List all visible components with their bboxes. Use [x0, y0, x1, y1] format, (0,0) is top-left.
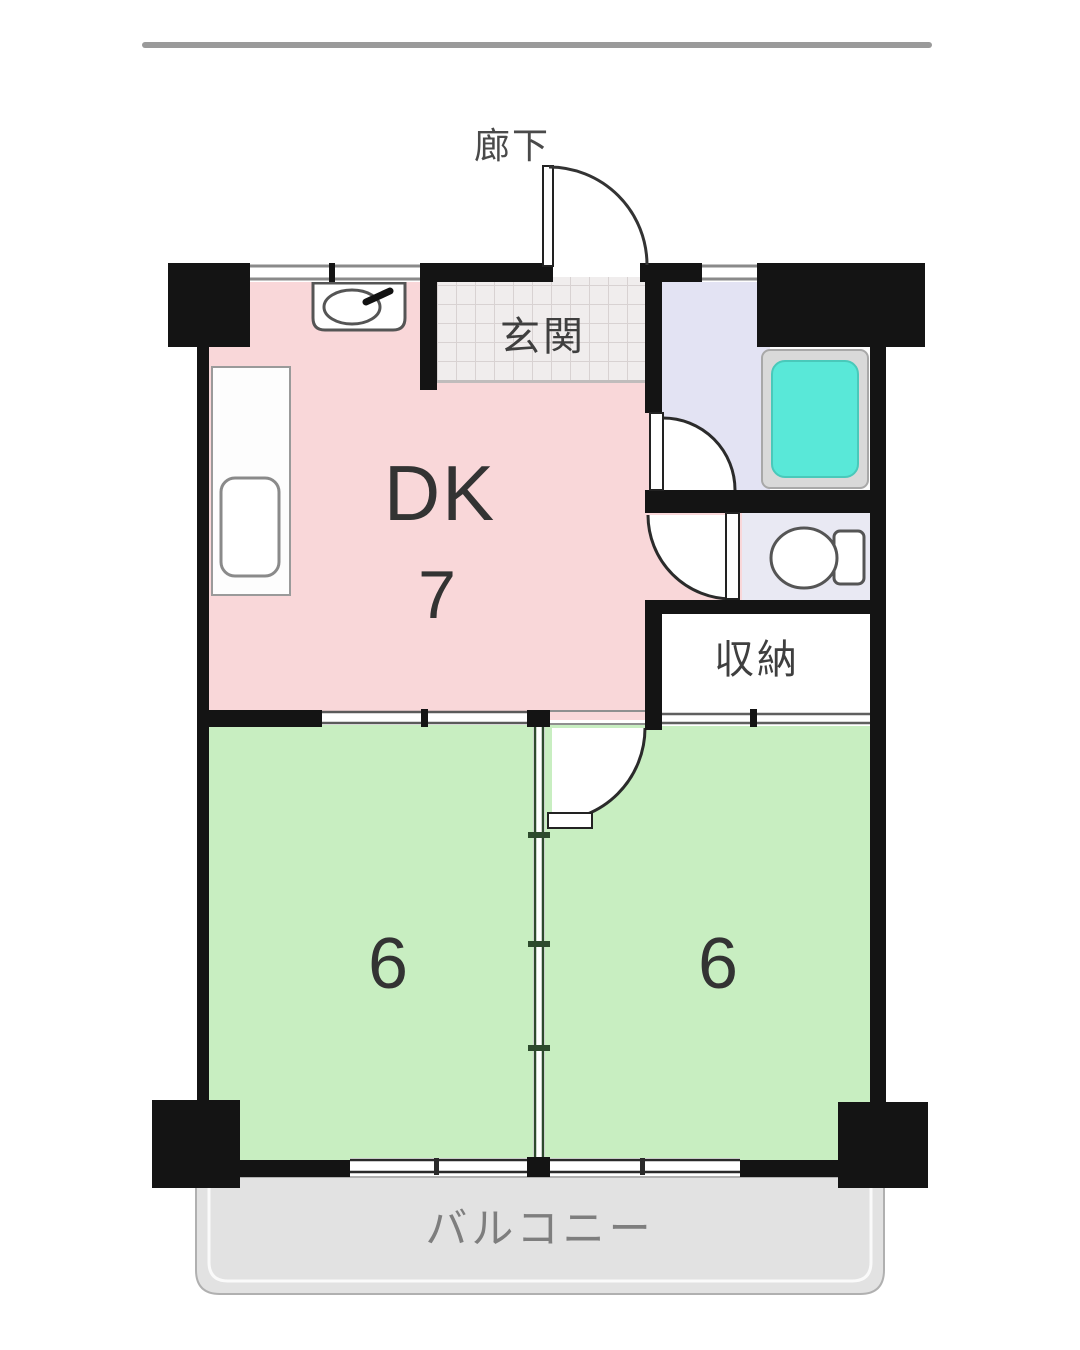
corridor-label: 廊下: [474, 125, 550, 166]
balcony-label: バルコニー: [425, 1205, 654, 1252]
kitchen-sink-basin-icon: [324, 290, 380, 324]
partition-tick: [528, 941, 550, 947]
wall-entrance-left: [420, 263, 437, 390]
bedroom-left-size-label: 6: [368, 924, 408, 1004]
wall-toilet-top: [645, 490, 886, 513]
wall-post-dk-center: [527, 710, 550, 727]
floor-plan-svg: 廊下 玄関 DK 7 収納 6 6 バルコニー: [0, 0, 1080, 1350]
top-rule: [142, 42, 932, 48]
wall-storage-top: [645, 600, 886, 614]
partition-foot: [527, 1157, 550, 1177]
toilet-icon: [771, 528, 864, 588]
wall-block-top-right: [757, 263, 925, 347]
wall-storage-left: [645, 600, 662, 730]
bedroom-door-leaf: [548, 813, 592, 828]
entrance-door-leaf: [543, 166, 553, 266]
entrance-label: 玄関: [500, 315, 586, 359]
entrance-step-line: [437, 380, 645, 383]
dk-label: DK: [384, 449, 496, 537]
floor-plan-page: 廊下 玄関 DK 7 収納 6 6 バルコニー: [0, 0, 1080, 1350]
wall-outer-right: [870, 347, 886, 1104]
toilet-door-leaf: [726, 513, 739, 599]
bathtub-icon: [772, 361, 858, 477]
wall-post-bottom-right: [838, 1102, 928, 1188]
window-bottom-right: [550, 1158, 740, 1175]
dk-size-label: 7: [418, 557, 456, 633]
wall-bottom-left: [240, 1160, 350, 1177]
window-bottom-left: [350, 1158, 528, 1175]
sliding-door-dk-bedroom-left: [322, 709, 527, 727]
storage-label: 収納: [714, 638, 800, 682]
wall-post-bottom-left: [152, 1100, 240, 1188]
wall-dk-bedroom-left: [197, 710, 322, 727]
window-top-left: [250, 263, 420, 282]
partition-tick: [528, 832, 550, 838]
window-top-washroom: [702, 263, 757, 282]
kitchen-counter-sink-icon: [221, 478, 279, 576]
partition-tick: [528, 1045, 550, 1051]
wall-bottom-right: [740, 1160, 838, 1177]
washroom-door-leaf: [650, 413, 663, 490]
wall-washroom-left: [645, 263, 662, 413]
bedroom-right-size-label: 6: [698, 924, 738, 1004]
wall-post-top-left: [168, 263, 250, 347]
wall-top-center-left: [420, 263, 553, 282]
